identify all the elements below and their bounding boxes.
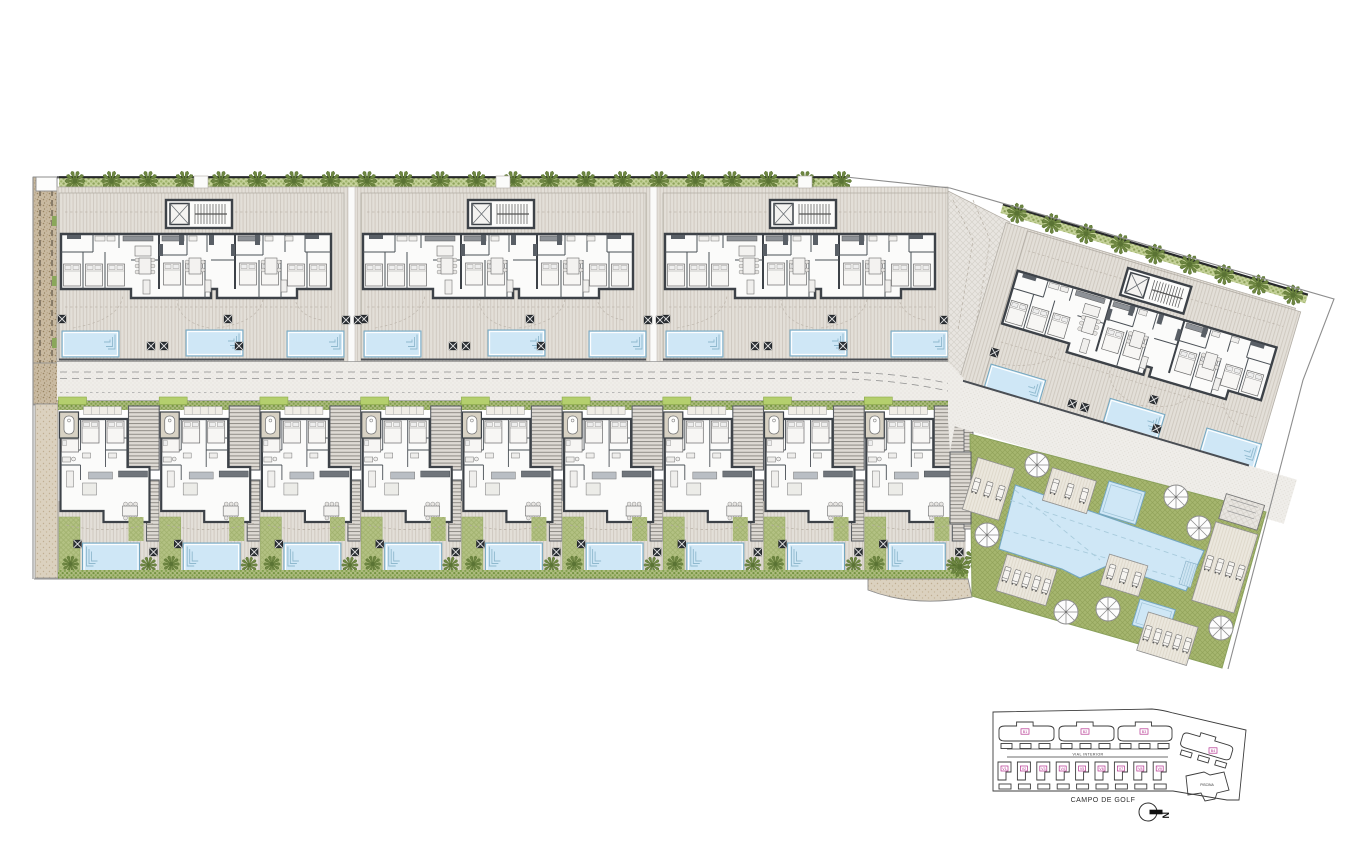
svg-text:V1: V1 — [1002, 767, 1006, 771]
svg-text:VIAL INTERIOR: VIAL INTERIOR — [1072, 753, 1103, 757]
svg-text:V9: V9 — [1157, 767, 1161, 771]
svg-text:N: N — [1161, 812, 1171, 819]
svg-text:V3: V3 — [1041, 767, 1045, 771]
svg-text:V5: V5 — [1080, 767, 1084, 771]
svg-text:V4: V4 — [1060, 767, 1064, 771]
svg-text:B1: B1 — [1023, 730, 1027, 734]
svg-text:V8: V8 — [1138, 767, 1142, 771]
svg-text:V2: V2 — [1022, 767, 1026, 771]
svg-text:V7: V7 — [1119, 767, 1123, 771]
svg-text:B4: B4 — [1211, 749, 1215, 753]
svg-text:B2: B2 — [1083, 730, 1087, 734]
svg-text:B3: B3 — [1142, 730, 1146, 734]
svg-text:CAMPO DE GOLF: CAMPO DE GOLF — [1071, 797, 1136, 804]
svg-text:PISCINA: PISCINA — [1200, 783, 1214, 787]
svg-text:V6: V6 — [1099, 767, 1103, 771]
